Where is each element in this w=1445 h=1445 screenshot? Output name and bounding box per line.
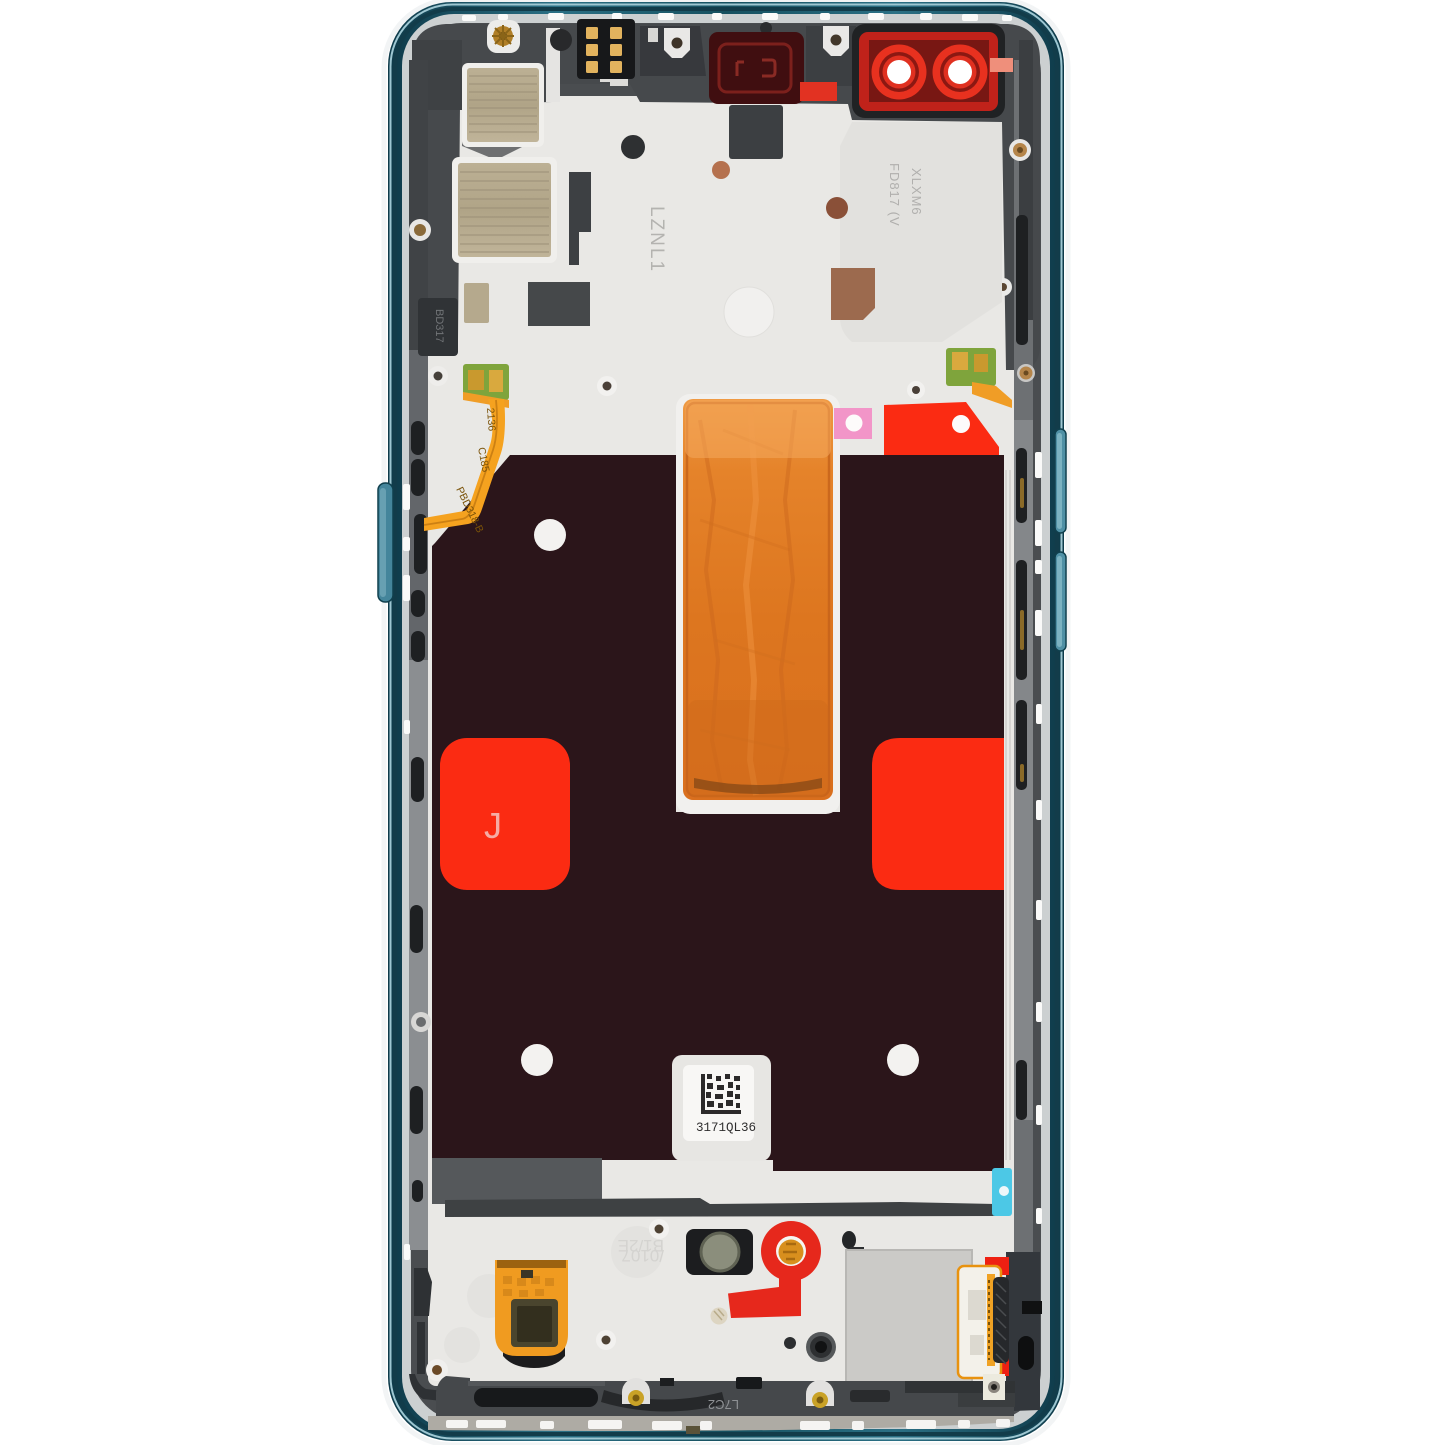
- svg-text:LZNL1: LZNL1: [646, 206, 667, 273]
- svg-text:J: J: [484, 805, 502, 846]
- svg-text:3171QL36: 3171QL36: [696, 1121, 756, 1135]
- svg-text:BD317: BD317: [433, 309, 445, 343]
- svg-text:2136: 2136: [484, 407, 498, 431]
- svg-text:FD817 (V: FD817 (V: [887, 163, 902, 227]
- svg-text:/0107: /0107: [621, 1246, 664, 1265]
- svg-text:XLXM6: XLXM6: [909, 168, 924, 216]
- svg-text:L7C2: L7C2: [708, 1397, 739, 1412]
